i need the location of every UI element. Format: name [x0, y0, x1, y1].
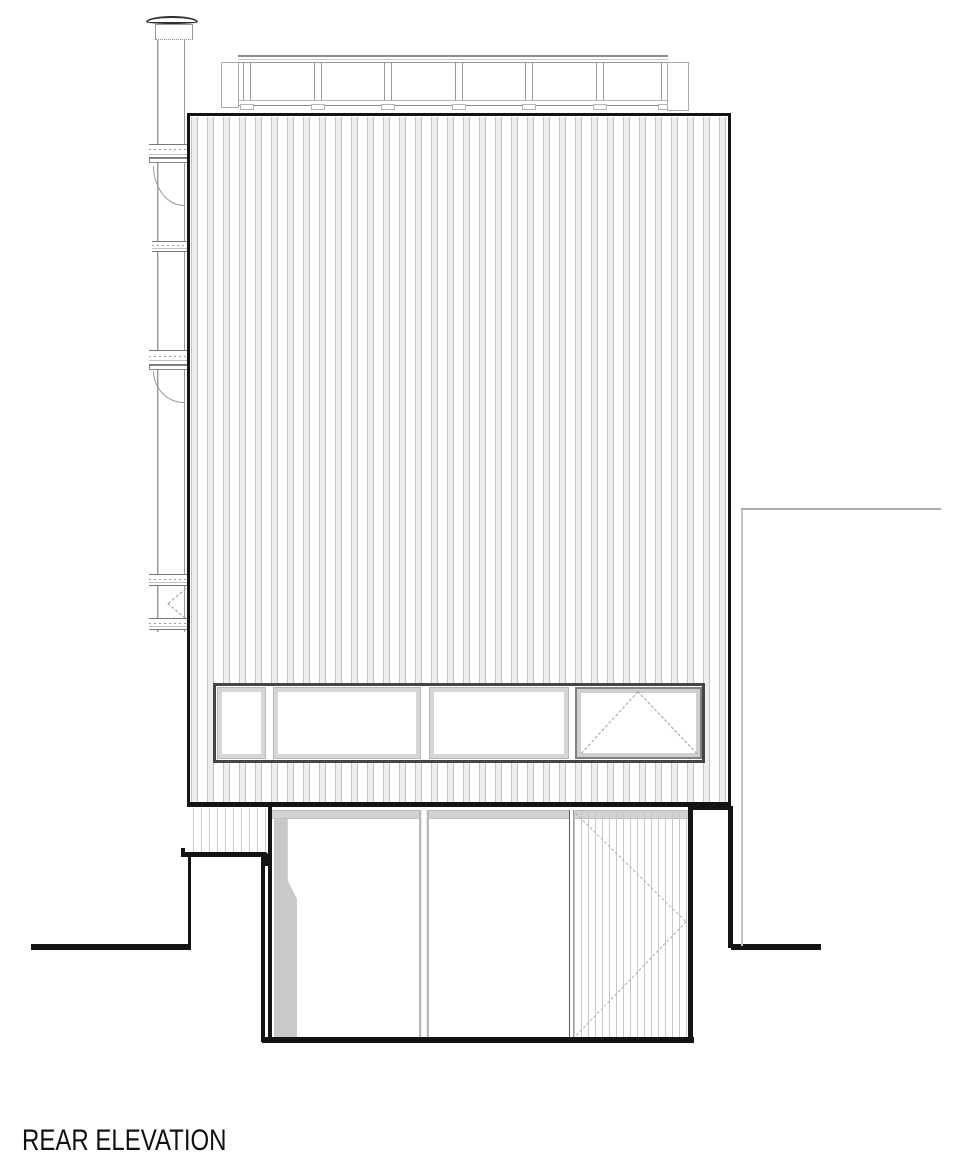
door-leaf-shadow — [274, 810, 297, 1038]
glazing-mullion — [419, 810, 429, 1038]
flue-collar — [155, 24, 193, 40]
flue-pipe — [157, 40, 185, 632]
garden-wall-cap — [181, 852, 268, 857]
railing-post — [384, 63, 392, 100]
flue-flange — [149, 618, 189, 630]
glazing-jamb-inner — [268, 806, 272, 1042]
railing-post-foot — [522, 104, 536, 110]
window-pane-4-opening — [575, 687, 702, 759]
flue-bracket-ledge — [149, 365, 189, 370]
railing-post-foot — [240, 104, 254, 110]
flue-flange — [149, 144, 189, 158]
lower-sill-line — [262, 1037, 694, 1043]
railing-post — [525, 63, 533, 100]
railing-end-cap-left — [221, 62, 239, 108]
drawing-title: REAR ELEVATION — [22, 1124, 227, 1158]
flue-flange — [149, 350, 189, 365]
railing-post-foot — [381, 104, 395, 110]
retaining-wall-edge — [728, 806, 733, 948]
neighbour-outline-vertical — [741, 510, 743, 946]
railing-post — [314, 63, 322, 100]
ground-line-left — [31, 944, 191, 950]
window-pane-2 — [273, 687, 421, 759]
flue-flange — [152, 241, 187, 252]
railing-post — [455, 63, 463, 100]
neighbour-outline-horizontal — [741, 508, 941, 510]
window-pane-3 — [429, 687, 569, 759]
rear-elevation-drawing: REAR ELEVATION — [0, 0, 960, 1175]
garden-wall-cap-lip-right — [261, 857, 268, 866]
garden-wall-edge — [188, 857, 191, 947]
glazing-jamb-outer — [261, 866, 265, 1042]
window-pane-1 — [217, 687, 266, 759]
railing-end-cap-right — [667, 62, 689, 111]
flue-flange — [149, 574, 189, 586]
retaining-wall-top — [693, 806, 733, 810]
flue-bracket-ledge — [149, 158, 189, 163]
railing-post — [243, 63, 251, 100]
lower-cladding-strip — [193, 808, 267, 854]
railing-post-foot — [311, 104, 325, 110]
railing-top-rail — [238, 55, 668, 63]
railing-post — [596, 63, 604, 100]
railing-post-foot — [593, 104, 607, 110]
railing-post-foot — [452, 104, 466, 110]
slatted-gate — [574, 810, 688, 1037]
lower-volume-right-edge — [688, 806, 693, 1043]
ground-line-right — [731, 944, 821, 950]
flue-cap — [146, 16, 198, 24]
